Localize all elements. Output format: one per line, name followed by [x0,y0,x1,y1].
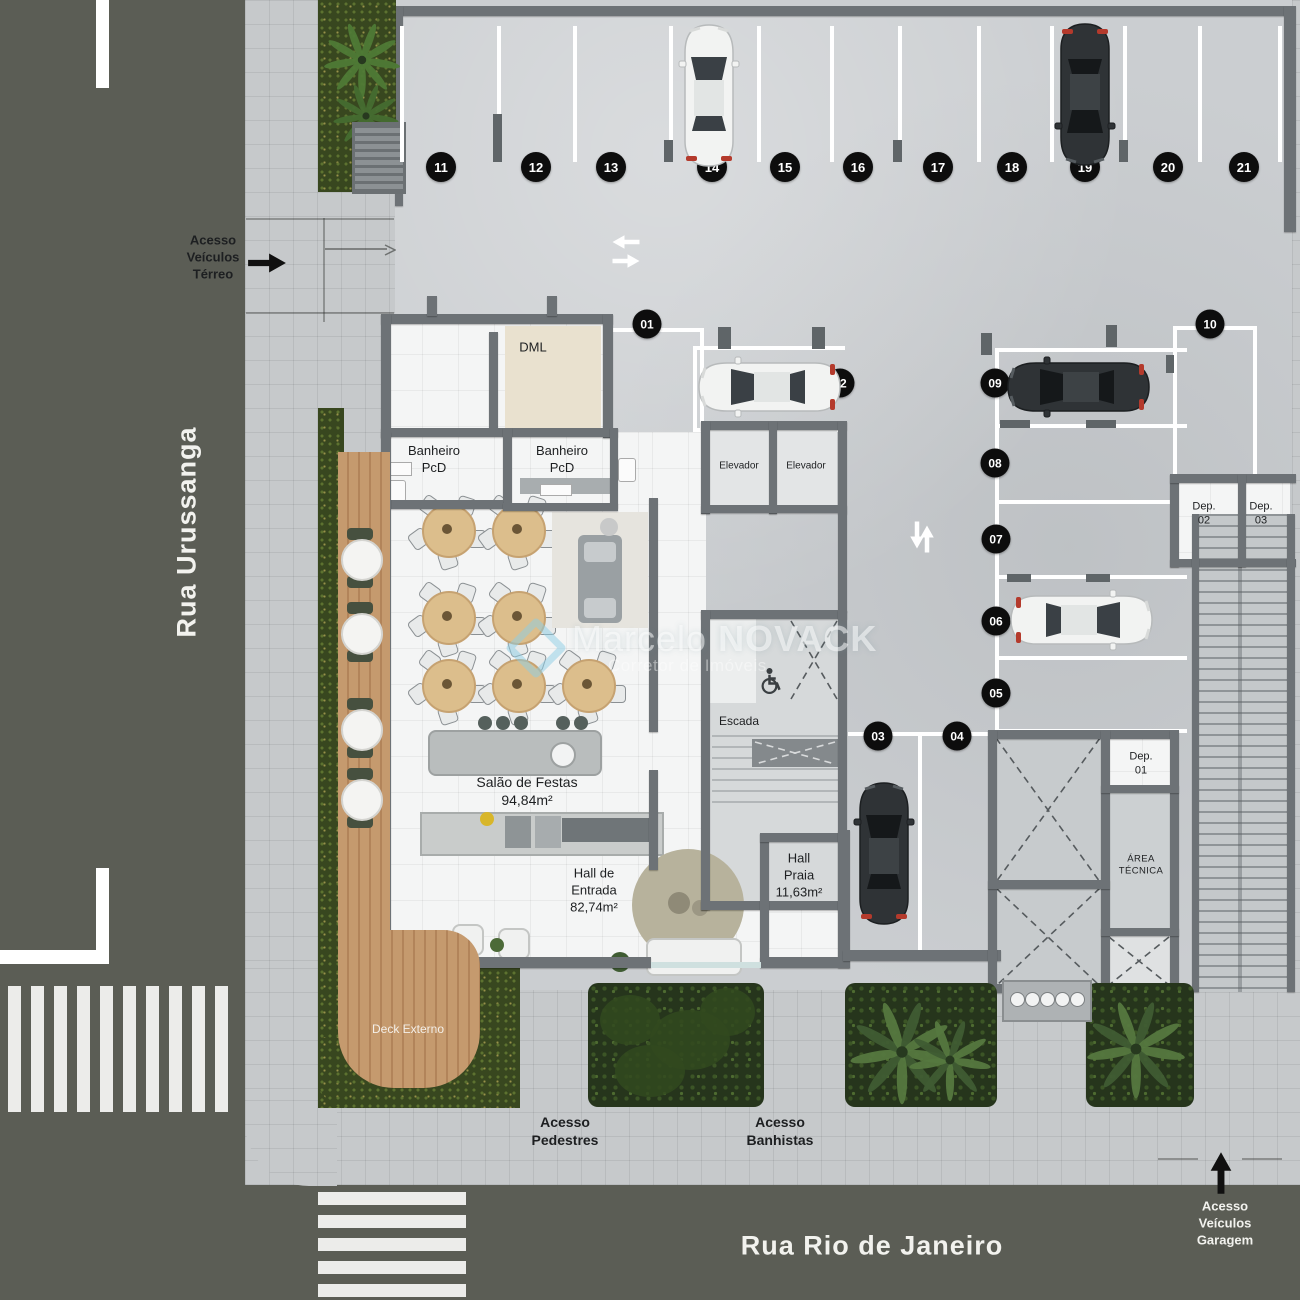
shaft-x-hatch [993,735,1103,890]
wall [1238,474,1246,567]
wall [1192,514,1199,992]
shaft-x-hatch [752,739,838,772]
parking-badge: 20 [1153,152,1183,182]
wall [843,950,1001,961]
direction-arrow-up [918,524,941,554]
deck-table [341,709,383,751]
room-label-banheiro-pcd-2: BanheiroPcD [536,443,588,477]
wall [381,314,613,324]
room-label-hall-entrada: Hall deEntrada82,74m² [570,866,618,917]
parking-badge: 21 [1229,152,1259,182]
wall [1101,785,1179,793]
wall [701,505,847,513]
wall [1170,474,1179,567]
stall-line [995,656,1187,660]
parking-badge: 03 [864,722,893,751]
access-veiculos-garagem-label: AcessoVeículosGaragem [1197,1199,1253,1250]
sofa-cushion [584,542,616,562]
wall [1170,474,1296,483]
room-label-area-tecnica: ÁREATÉCNICA [1119,854,1164,879]
wall [649,770,658,870]
parking-badge: 10 [1196,310,1225,339]
wall [1170,559,1296,567]
stool [496,716,510,730]
car-dark [1054,17,1116,167]
vehicle-ramp [1199,514,1287,992]
hedge-deck-right [478,945,520,1108]
coffee-table [668,892,690,914]
wheel-stop [1119,140,1128,162]
hall-sofa [646,938,742,976]
access-pedestres-label: AcessoPedestres [532,1113,599,1149]
parking-badge: 18 [997,152,1027,182]
access-veiculos-terreo-label: AcessoVeículosTérreo [187,233,240,284]
wall [503,503,618,511]
table-center [582,679,592,689]
wall [838,421,847,514]
stool [574,716,588,730]
garage-wall [395,6,1286,16]
appliance [535,816,561,848]
dining-table-set [409,646,485,722]
road-line [0,950,109,964]
wall [760,833,769,966]
crosswalk-left [8,986,234,1112]
meter [1010,992,1025,1007]
watermark-subtitle: Corretor de Imóveis [608,656,767,676]
shelf [562,818,654,842]
glass-front [651,962,761,968]
wall [701,901,847,910]
cooktop [550,742,576,768]
handrail [1242,1158,1282,1160]
deck-table [341,539,383,581]
appliance [505,816,531,848]
handrail [1158,1158,1198,1160]
stall-line [757,26,761,162]
wall [760,957,850,968]
table-center [442,679,452,689]
parking-badge: 07 [982,525,1011,554]
stall-line [1198,26,1202,162]
table-center [512,524,522,534]
driveway-guide-arrow [384,243,396,261]
wall [988,730,1178,739]
wall [547,296,557,316]
room-label-dep-02: Dep.02 [1192,500,1215,529]
stall-line [918,732,922,960]
room-label-deck-externo: Deck Externo [372,1022,444,1038]
toilet [618,458,636,482]
access-banhistas-label: AcessoBanhistas [747,1113,814,1149]
access-terreo-arrow [246,250,288,281]
sink [540,484,572,496]
wall [381,428,618,437]
stall-line [995,500,1187,504]
car-white [678,23,740,173]
parking-badge: 01 [633,310,662,339]
table-center [512,679,522,689]
direction-arrow-right [610,252,642,275]
wall [1101,928,1179,936]
flower-vase [480,812,494,826]
deck-table [341,779,383,821]
stool [514,716,528,730]
palm-tree-icon [1082,995,1190,1108]
parking-badge: 08 [981,449,1010,478]
wall [1170,730,1179,992]
wall [988,730,997,992]
dining-table-set [409,578,485,654]
parking-badge: 16 [843,152,873,182]
parking-badge: 15 [770,152,800,182]
deck-externo [338,930,480,1088]
plant [490,938,504,952]
wall [427,296,437,316]
wheel-stop [893,140,902,162]
wheel-stop [1166,355,1174,373]
ramp-divider [1238,514,1242,992]
meter [1040,992,1055,1007]
driveway-line [246,218,394,220]
sofa-cushion [584,598,616,618]
road-line [96,868,109,952]
meter [1070,992,1085,1007]
street-rua-rio-de-janeiro [0,1185,1300,1300]
wall [838,830,850,968]
deck-table [341,613,383,655]
room-label-banheiro-pcd-1: BanheiroPcD [408,443,460,477]
wheel-stop [1086,420,1116,428]
wheel-stop [981,333,992,355]
meter [1025,992,1040,1007]
stall-line [400,26,404,162]
garage-wall [1284,6,1296,232]
parking-badge: 11 [426,152,456,182]
parking-badge: 13 [596,152,626,182]
stall-line [977,26,981,162]
car-dark [853,781,915,931]
shaft-x-hatch [993,885,1103,994]
bush [700,988,755,1036]
wheel-stop [812,327,825,349]
road-line [96,0,109,88]
table-center [512,611,522,621]
table-center [442,611,452,621]
wall [381,500,503,509]
wheel-stop [1086,574,1110,582]
room-label-dep-03: Dep.03 [1249,500,1272,529]
wall [489,332,498,432]
vent-grill [352,122,406,194]
stall-line [995,348,1187,352]
wall [503,428,512,508]
room-label-elevador-1: Elevador [719,460,758,473]
car-white [697,356,847,418]
wheel-stop [1000,420,1030,428]
wall [838,513,847,612]
room-label-dep-01: Dep.01 [1129,750,1152,779]
wheel-stop [664,140,673,162]
car-white [1004,589,1154,651]
stall-line [1278,26,1282,162]
stool [478,716,492,730]
watermark-name: Marcelo NOVACK [572,618,877,660]
street-label-rua-urussanga: Rua Urussanga [169,426,204,637]
palm-tree-icon [905,1015,995,1110]
stall-line [573,26,577,162]
room-label-dml: DML [519,340,546,357]
wall [760,833,848,842]
stall-line [830,26,834,162]
driveway-guide [325,248,387,250]
street-label-rua-rio-de-janeiro: Rua Rio de Janeiro [741,1228,1004,1263]
wall [988,880,1110,889]
wall [701,421,710,514]
direction-arrow-left [610,228,642,251]
side-table [600,518,618,536]
wheel-stop [1106,325,1117,347]
room-label-salao-festas: Salão de Festas94,84m² [476,773,577,809]
table-center [442,524,452,534]
driveway-line [323,218,325,322]
wall [1101,730,1110,992]
wheel-stop [718,327,731,349]
floor-plan: 1112131415161718192021 01020304050607080… [0,0,1300,1300]
parking-badge: 17 [923,152,953,182]
room-label-escada: Escada [719,714,759,730]
crosswalk-bottom [318,1192,466,1300]
driveway-line [246,312,394,314]
wall [769,421,777,514]
parking-badge: 04 [943,722,972,751]
room-label-elevador-2: Elevador [786,460,825,473]
wall [610,428,618,508]
wall [603,314,613,438]
parking-badge: 05 [982,679,1011,708]
wheel-stop [493,114,502,162]
meter [1055,992,1070,1007]
stool [556,716,570,730]
car-dark [1006,356,1156,418]
wall [381,314,391,438]
room-label-hall-praia: HallPraia11,63m² [776,851,823,902]
access-garagem-arrow [1206,1150,1241,1196]
parking-badge: 12 [521,152,551,182]
wheel-stop [1007,574,1031,582]
wall [649,498,658,732]
wall [1287,514,1295,992]
bush [615,1045,685,1097]
